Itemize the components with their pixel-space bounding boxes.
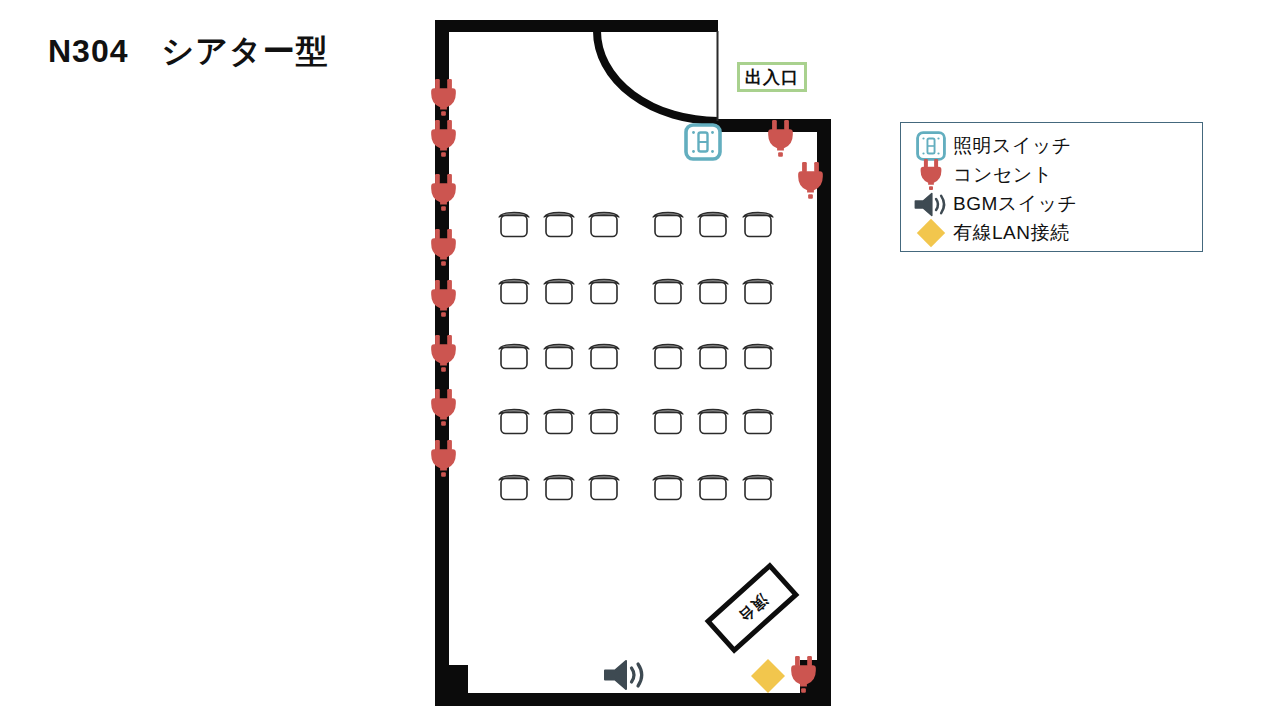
pillar-bottom-left <box>437 665 468 693</box>
chair-icon <box>542 405 576 435</box>
chair-icon <box>497 208 531 238</box>
chair-icon <box>497 405 531 435</box>
door-swing-arc <box>597 31 718 121</box>
chair-icon <box>587 208 621 238</box>
chair-icon <box>696 208 730 238</box>
legend-item-label: 照明スイッチ <box>953 133 1072 159</box>
page-title: N304 シアター型 <box>48 30 329 74</box>
chair-icon <box>542 340 576 370</box>
chair-icon <box>651 275 685 305</box>
legend-item: BGMスイッチ <box>909 190 1202 219</box>
wall-top <box>435 20 718 32</box>
outlet-icon <box>428 335 459 373</box>
light-switch-icon <box>684 123 722 161</box>
chair-icon <box>741 340 775 370</box>
bgm-switch-icon <box>602 659 648 691</box>
bgm-switch-icon <box>909 192 953 217</box>
door-leaf-line <box>717 31 719 121</box>
legend-item: 有線LAN接続 <box>909 219 1202 248</box>
legend-item: 照明スイッチ <box>909 132 1202 161</box>
chair-icon <box>587 340 621 370</box>
wall-right <box>817 119 831 706</box>
chair-icon <box>542 471 576 501</box>
chair-icon <box>497 275 531 305</box>
outlet-icon <box>428 79 459 117</box>
chair-icon <box>741 208 775 238</box>
slide-canvas: N304 シアター型 出入口 <box>0 0 1280 720</box>
chair-icon <box>587 471 621 501</box>
outlet-icon <box>428 120 459 158</box>
chair-icon <box>741 405 775 435</box>
chair-icon <box>651 471 685 501</box>
chair-icon <box>587 275 621 305</box>
outlet-icon <box>765 120 796 158</box>
chair-icon <box>542 208 576 238</box>
outlet-icon <box>428 174 459 212</box>
chair-icon <box>651 405 685 435</box>
podium: 演台 <box>705 562 800 654</box>
outlet-icon <box>428 229 459 267</box>
chair-icon <box>587 405 621 435</box>
chair-icon <box>542 275 576 305</box>
outlet-icon <box>428 440 459 478</box>
chair-icon <box>497 471 531 501</box>
outlet-icon <box>428 280 459 318</box>
door-label: 出入口 <box>737 62 807 92</box>
chair-icon <box>741 275 775 305</box>
chair-icon <box>651 208 685 238</box>
wall-bottom <box>435 693 831 706</box>
outlet-icon <box>909 159 953 191</box>
lan-icon <box>909 218 953 248</box>
chair-icon <box>696 340 730 370</box>
chair-icon <box>497 340 531 370</box>
chair-icon <box>696 405 730 435</box>
legend-item-label: 有線LAN接続 <box>953 220 1069 246</box>
chair-icon <box>651 340 685 370</box>
light-switch-icon <box>909 131 953 161</box>
legend-box: 照明スイッチ コンセント BGMスイッチ 有線LAN接続 <box>900 122 1203 252</box>
legend-item-label: BGMスイッチ <box>953 191 1078 217</box>
outlet-icon <box>795 162 826 200</box>
lan-icon <box>750 658 786 694</box>
chair-icon <box>696 471 730 501</box>
legend-item: コンセント <box>909 161 1202 190</box>
chair-icon <box>696 275 730 305</box>
legend-item-label: コンセント <box>953 162 1053 188</box>
outlet-icon <box>788 656 819 694</box>
chair-icon <box>741 471 775 501</box>
legend-list: 照明スイッチ コンセント BGMスイッチ 有線LAN接続 <box>909 132 1202 248</box>
outlet-icon <box>428 389 459 427</box>
podium-label: 演台 <box>733 590 771 627</box>
room-outline <box>0 0 1280 720</box>
